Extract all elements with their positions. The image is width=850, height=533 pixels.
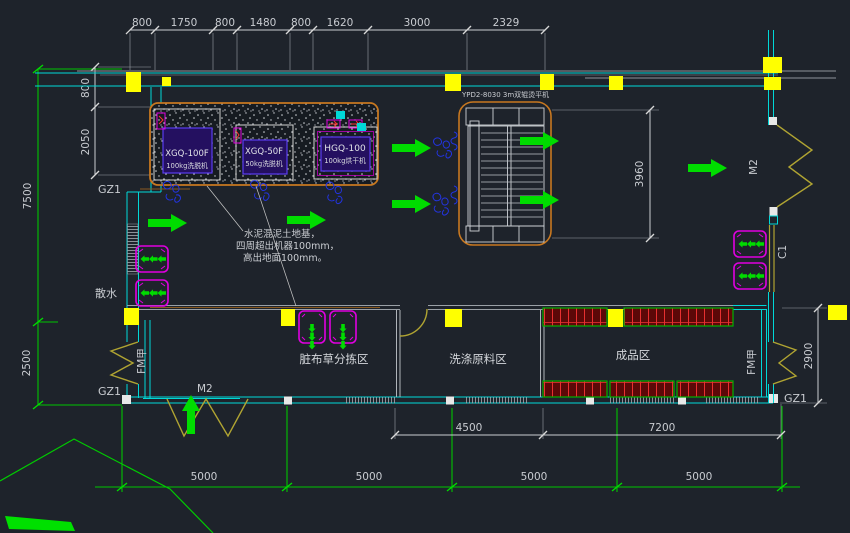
dim-label: 1750 — [171, 17, 198, 29]
room-label-raw-material: 洗涤原料区 — [449, 352, 507, 366]
column-marker — [609, 76, 623, 90]
fm-door-mark: FM甲 — [136, 348, 148, 374]
dim-label: 5000 — [521, 471, 548, 483]
note-line: 四周超出机器100mm， — [236, 240, 339, 252]
column-marker — [540, 74, 554, 90]
machine-spec-label: 100kg洗脱机 — [166, 161, 208, 170]
column-marker — [586, 397, 594, 405]
column-marker — [608, 309, 623, 327]
blue-annotation-mark — [451, 186, 457, 204]
shelf-rack — [543, 308, 607, 326]
window-hatch — [610, 397, 676, 404]
dim-label: 800 — [132, 17, 152, 29]
dim-label: 2329 — [493, 17, 520, 29]
column-marker — [445, 74, 461, 91]
dim-label: 2900 — [803, 343, 815, 370]
trolley-symbol — [136, 246, 168, 272]
door-swing-icon — [111, 342, 138, 384]
door-swing-icon — [167, 399, 248, 436]
room-label-sorting: 脏布草分拣区 — [300, 352, 369, 366]
column-marker — [445, 309, 462, 327]
dim-label: 7500 — [22, 183, 34, 210]
foundation-note: 水泥混泥土地基， 四周超出机器100mm， 高出地面100mm。 — [207, 186, 339, 306]
room-label-finished: 成品区 — [616, 348, 651, 362]
dim-label: 5000 — [191, 471, 218, 483]
column-marker — [122, 395, 131, 404]
column-marker — [446, 397, 454, 405]
dim-label: 800 — [291, 17, 311, 29]
door-swing-icon — [400, 309, 427, 336]
column-marker — [162, 77, 171, 86]
trolley-symbol — [330, 311, 356, 350]
flow-arrow-icon — [287, 211, 326, 229]
machine-model-label: XGQ-100F — [165, 149, 209, 159]
column-marker — [126, 72, 141, 92]
machine-spec-label: 100kg烘干机 — [324, 156, 366, 165]
gz1-mark: GZ1 — [98, 385, 121, 398]
trolley-symbol — [299, 311, 325, 350]
column-marker — [124, 308, 139, 325]
shelf-rack — [677, 381, 733, 397]
m2-door-mark: M2 — [748, 159, 760, 175]
flow-arrow-icon — [392, 139, 431, 157]
dim-label: 5000 — [686, 471, 713, 483]
dim-label: 800 — [80, 78, 92, 98]
window-hatch — [345, 397, 395, 404]
window-hatch — [704, 397, 760, 404]
trolley-symbol — [734, 263, 766, 289]
shelf-rack — [543, 381, 607, 397]
dim-label: 800 — [215, 17, 235, 29]
dim-label: 2050 — [80, 129, 92, 156]
fm-door-mark: FM甲 — [746, 349, 758, 375]
dim-label: 5000 — [356, 471, 383, 483]
drain-scribble-icon — [433, 137, 452, 159]
machine-spec-label: 50kg洗脱机 — [245, 159, 282, 168]
window-hatch — [465, 397, 527, 404]
drain-scribble-icon — [431, 193, 451, 216]
column-marker — [284, 397, 292, 405]
bottom-inner-dimension: 4500 7200 — [391, 404, 785, 439]
column-marker — [763, 57, 782, 73]
ironer-label: YPD2-8030 3m双辊烫平机 — [461, 90, 549, 99]
dim-label: 3000 — [404, 17, 431, 29]
dim-label: 2500 — [21, 350, 33, 377]
vent-marker — [336, 111, 345, 119]
dim-label: 3960 — [634, 161, 646, 188]
dim-label: 1620 — [327, 17, 354, 29]
top-wall — [35, 71, 836, 86]
gz1-mark: GZ1 — [98, 183, 121, 196]
machine-model-label: HGQ-100 — [324, 144, 366, 154]
top-dimension-chain: 800 1750 800 1480 800 1620 3000 2329 — [126, 17, 549, 70]
cad-viewport: 800 1750 800 1480 800 1620 3000 2329 800… — [0, 0, 850, 533]
blue-annotation-mark — [451, 132, 457, 150]
dim-label: 7200 — [649, 422, 676, 434]
flow-arrow-icon — [148, 214, 187, 232]
c1-window-mark: C1 — [777, 245, 789, 259]
dim-label: 4500 — [456, 422, 483, 434]
column-marker — [828, 305, 847, 320]
note-line: 水泥混泥土地基， — [244, 228, 320, 240]
left-vestibule-wall — [143, 320, 240, 399]
splash-apron-label: 散水 — [95, 286, 117, 300]
door-swing-icon — [773, 342, 796, 384]
column-marker — [678, 397, 686, 405]
flow-arrow-icon — [392, 195, 431, 213]
shelf-rack — [610, 381, 674, 397]
trolley-symbol — [136, 280, 168, 306]
ironer-machine: YPD2-8030 3m双辊烫平机 — [451, 90, 551, 245]
trolley-symbol — [734, 231, 766, 257]
note-line: 高出地面100mm。 — [243, 252, 327, 264]
trolleys — [136, 231, 766, 350]
flow-arrow-icon — [520, 191, 559, 209]
landscape-marks — [0, 439, 213, 533]
ironer-dimension: 3960 — [552, 106, 659, 242]
column-marker — [281, 309, 295, 326]
floor-plan-drawing[interactable]: 800 1750 800 1480 800 1620 3000 2329 800… — [0, 0, 850, 533]
machine-model-label: XGQ-50F — [245, 147, 283, 157]
door-swing-icon — [777, 125, 812, 207]
shelf-rack — [624, 308, 733, 326]
vent-marker — [357, 123, 366, 131]
dim-label: 1480 — [250, 17, 277, 29]
flow-arrow-icon — [688, 159, 727, 177]
column-marker — [764, 77, 781, 90]
m2-door-mark: M2 — [197, 383, 213, 395]
gz1-mark: GZ1 — [784, 392, 807, 405]
